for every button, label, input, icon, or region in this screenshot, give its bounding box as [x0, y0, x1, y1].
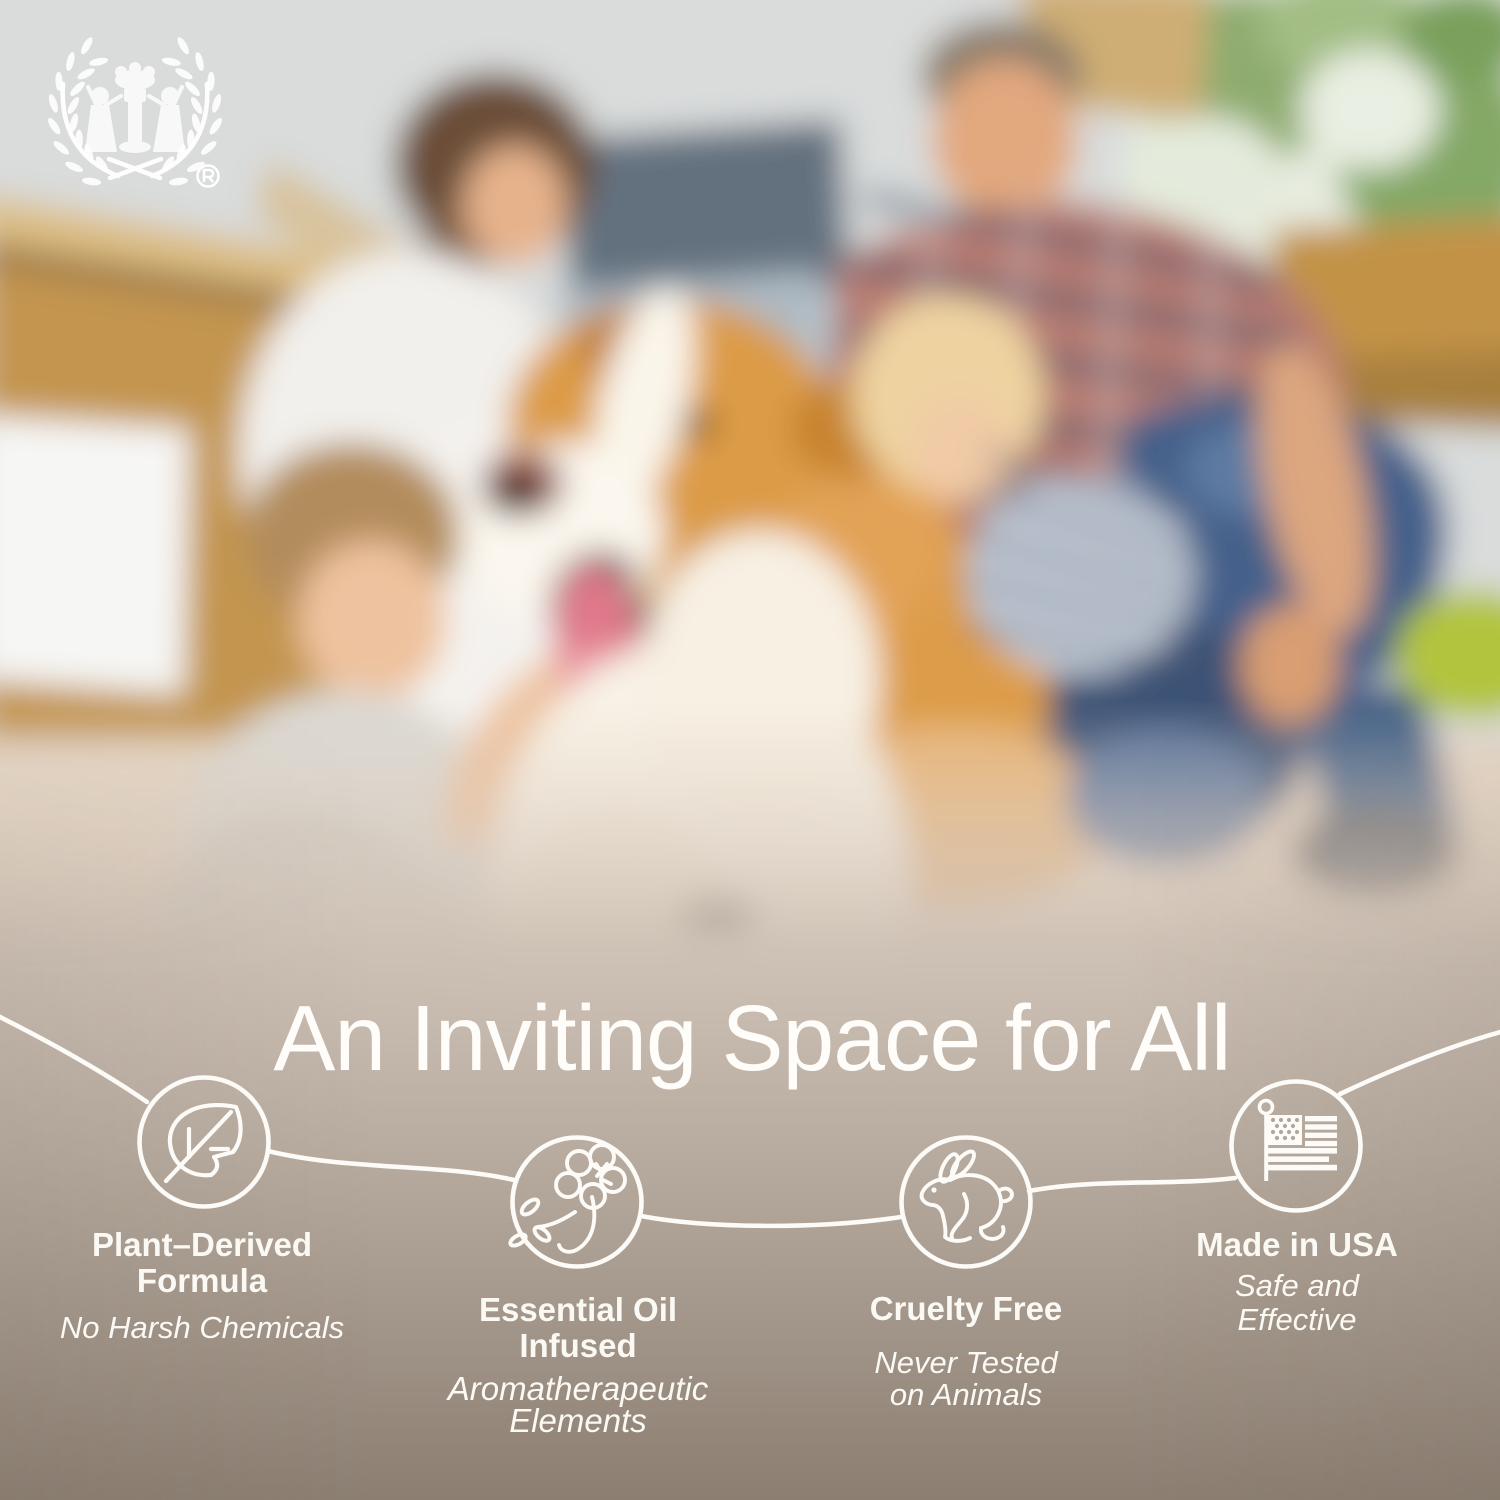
svg-text:Cruelty Free: Cruelty Free — [870, 1290, 1063, 1327]
svg-text:An Inviting Space for All: An Inviting Space for All — [273, 986, 1230, 1090]
svg-text:Essential Oil: Essential Oil — [479, 1291, 677, 1328]
svg-text:Effective: Effective — [1238, 1302, 1357, 1337]
svg-text:Never Tested: Never Tested — [874, 1345, 1059, 1380]
svg-text:Elements: Elements — [509, 1402, 647, 1439]
svg-text:No Harsh Chemicals: No Harsh Chemicals — [60, 1310, 344, 1345]
svg-text:on Animals: on Animals — [890, 1377, 1042, 1412]
svg-text:Formula: Formula — [137, 1262, 268, 1299]
svg-text:Safe and: Safe and — [1235, 1268, 1361, 1303]
svg-text:Plant–Derived: Plant–Derived — [92, 1226, 312, 1263]
svg-text:Infused: Infused — [519, 1327, 636, 1364]
svg-text:Made in USA: Made in USA — [1196, 1226, 1398, 1263]
